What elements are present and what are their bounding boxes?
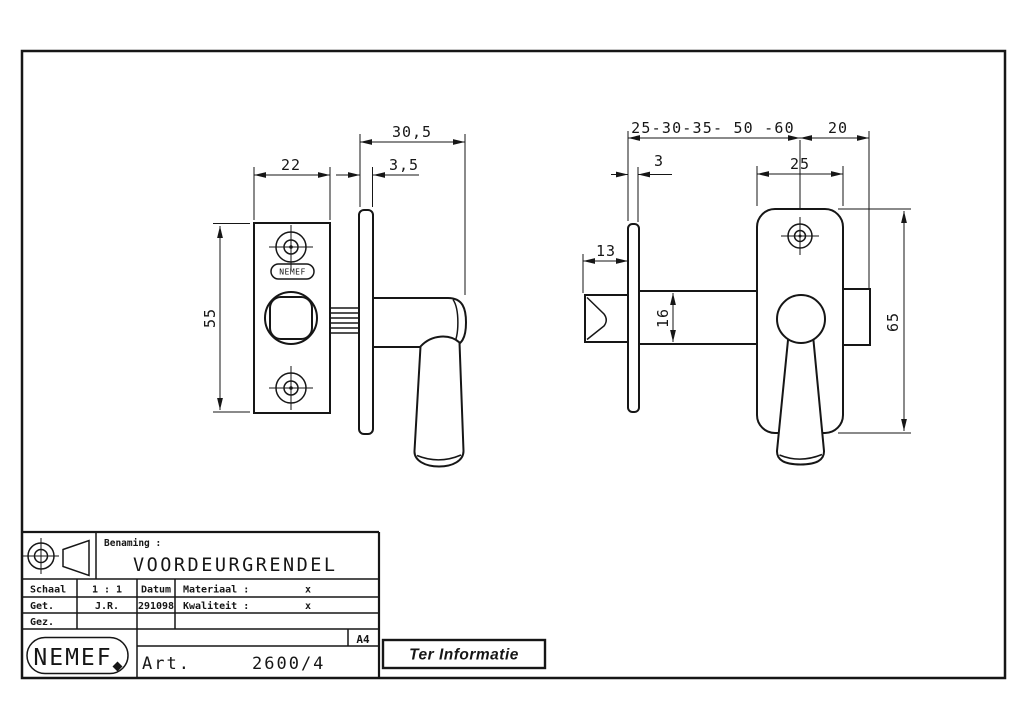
dim-bolt-dia: 16 bbox=[654, 308, 672, 328]
dim-backset-options: 25-30-35- 50 -60 bbox=[631, 119, 795, 137]
datum-value: 291098 bbox=[138, 601, 174, 612]
materiaal-value: x bbox=[305, 585, 311, 596]
dim-bolt-throw: 13 bbox=[596, 242, 616, 260]
dim-faceplate-t: 3 bbox=[654, 152, 664, 170]
materiaal-label: Materiaal : bbox=[183, 584, 249, 596]
technical-drawing: 30,5 22 3,5 55 NEMEF bbox=[0, 0, 1024, 725]
datum-label: Datum bbox=[141, 585, 171, 596]
plate-logo-text: NEMEF bbox=[279, 268, 306, 277]
brand-logo-text: NEMEF bbox=[33, 645, 112, 671]
knob-head bbox=[777, 295, 825, 343]
dim-tail: 20 bbox=[828, 119, 848, 137]
faceplate bbox=[628, 224, 639, 412]
paper-format: A4 bbox=[356, 633, 370, 646]
info-stamp: Ter Informatie bbox=[383, 640, 545, 668]
kwaliteit-label: Kwaliteit : bbox=[183, 600, 249, 612]
bolt-serrations bbox=[330, 308, 359, 333]
faceplate-edge bbox=[359, 210, 373, 434]
front-view: 30,5 22 3,5 55 NEMEF bbox=[201, 123, 466, 467]
get-value: J.R. bbox=[95, 601, 119, 612]
part-name: VOORDEURGRENDEL bbox=[133, 555, 338, 576]
brand-logo: NEMEF bbox=[27, 638, 128, 674]
bolt-tail bbox=[843, 289, 870, 345]
art-label: Art. bbox=[142, 654, 191, 674]
art-number: 2600/4 bbox=[252, 654, 325, 674]
knob-and-handle bbox=[777, 295, 825, 465]
dim-faceplate-thickness: 3,5 bbox=[389, 156, 419, 174]
drawing-sheet: 30,5 22 3,5 55 NEMEF bbox=[0, 0, 1024, 725]
dim-height: 55 bbox=[201, 308, 219, 328]
side-view: 25-30-35- 50 -60 20 3 25 13 16 65 bbox=[583, 119, 911, 465]
info-stamp-text: Ter Informatie bbox=[409, 647, 519, 664]
get-label: Get. bbox=[30, 601, 54, 612]
dim-plate-width: 22 bbox=[281, 156, 301, 174]
projection-symbol-icon bbox=[23, 538, 89, 576]
gez-label: Gez. bbox=[30, 617, 54, 628]
turn-knob bbox=[414, 337, 463, 467]
kwaliteit-value: x bbox=[305, 601, 311, 612]
bolt-tip bbox=[585, 295, 628, 342]
dim-body-height: 65 bbox=[884, 312, 902, 332]
spindle-hole bbox=[265, 292, 317, 344]
benaming-label: Benaming : bbox=[104, 538, 161, 549]
schaal-value: 1 : 1 bbox=[92, 585, 122, 596]
title-block: Benaming : VOORDEURGRENDEL Schaal 1 : 1 … bbox=[22, 532, 379, 678]
dim-depth: 30,5 bbox=[392, 123, 432, 141]
dim-body-width: 25 bbox=[790, 155, 810, 173]
schaal-label: Schaal bbox=[30, 585, 66, 596]
